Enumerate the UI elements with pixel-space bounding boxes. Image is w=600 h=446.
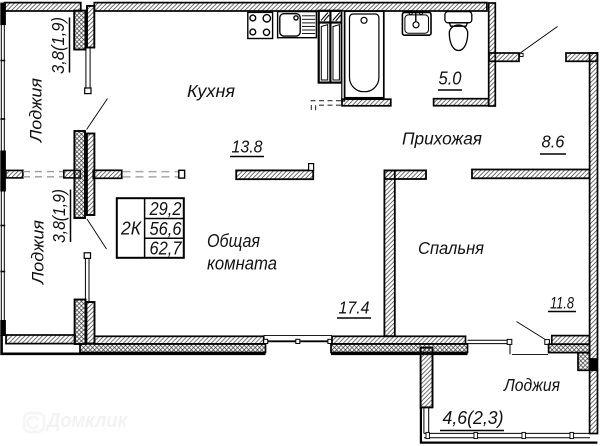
svg-text:62,7: 62,7 (150, 238, 183, 259)
svg-text:17.4: 17.4 (339, 298, 370, 318)
svg-text:11.8: 11.8 (550, 294, 574, 313)
svg-text:56,6: 56,6 (150, 218, 183, 239)
svg-text:3,8(1,9): 3,8(1,9) (49, 189, 69, 243)
svg-text:2К: 2К (120, 218, 142, 239)
svg-text:Общая: Общая (207, 231, 260, 251)
svg-text:Спальня: Спальня (418, 238, 484, 258)
svg-text:29,2: 29,2 (149, 198, 183, 219)
svg-text:Прихожая: Прихожая (402, 129, 482, 149)
svg-text:8.6: 8.6 (542, 132, 565, 152)
svg-text:4,6(2,3): 4,6(2,3) (443, 407, 504, 428)
svg-text:Домклик: Домклик (45, 410, 128, 432)
svg-text:Лоджия: Лоджия (28, 78, 46, 143)
svg-text:5.0: 5.0 (439, 69, 462, 89)
svg-text:3,8(1,9): 3,8(1,9) (48, 17, 68, 74)
svg-text:Кухня: Кухня (187, 81, 235, 101)
svg-text:Лоджия: Лоджия (30, 220, 48, 285)
svg-text:Лоджия: Лоджия (503, 375, 560, 395)
svg-text:комната: комната (207, 254, 277, 274)
svg-text:13.8: 13.8 (232, 137, 263, 157)
